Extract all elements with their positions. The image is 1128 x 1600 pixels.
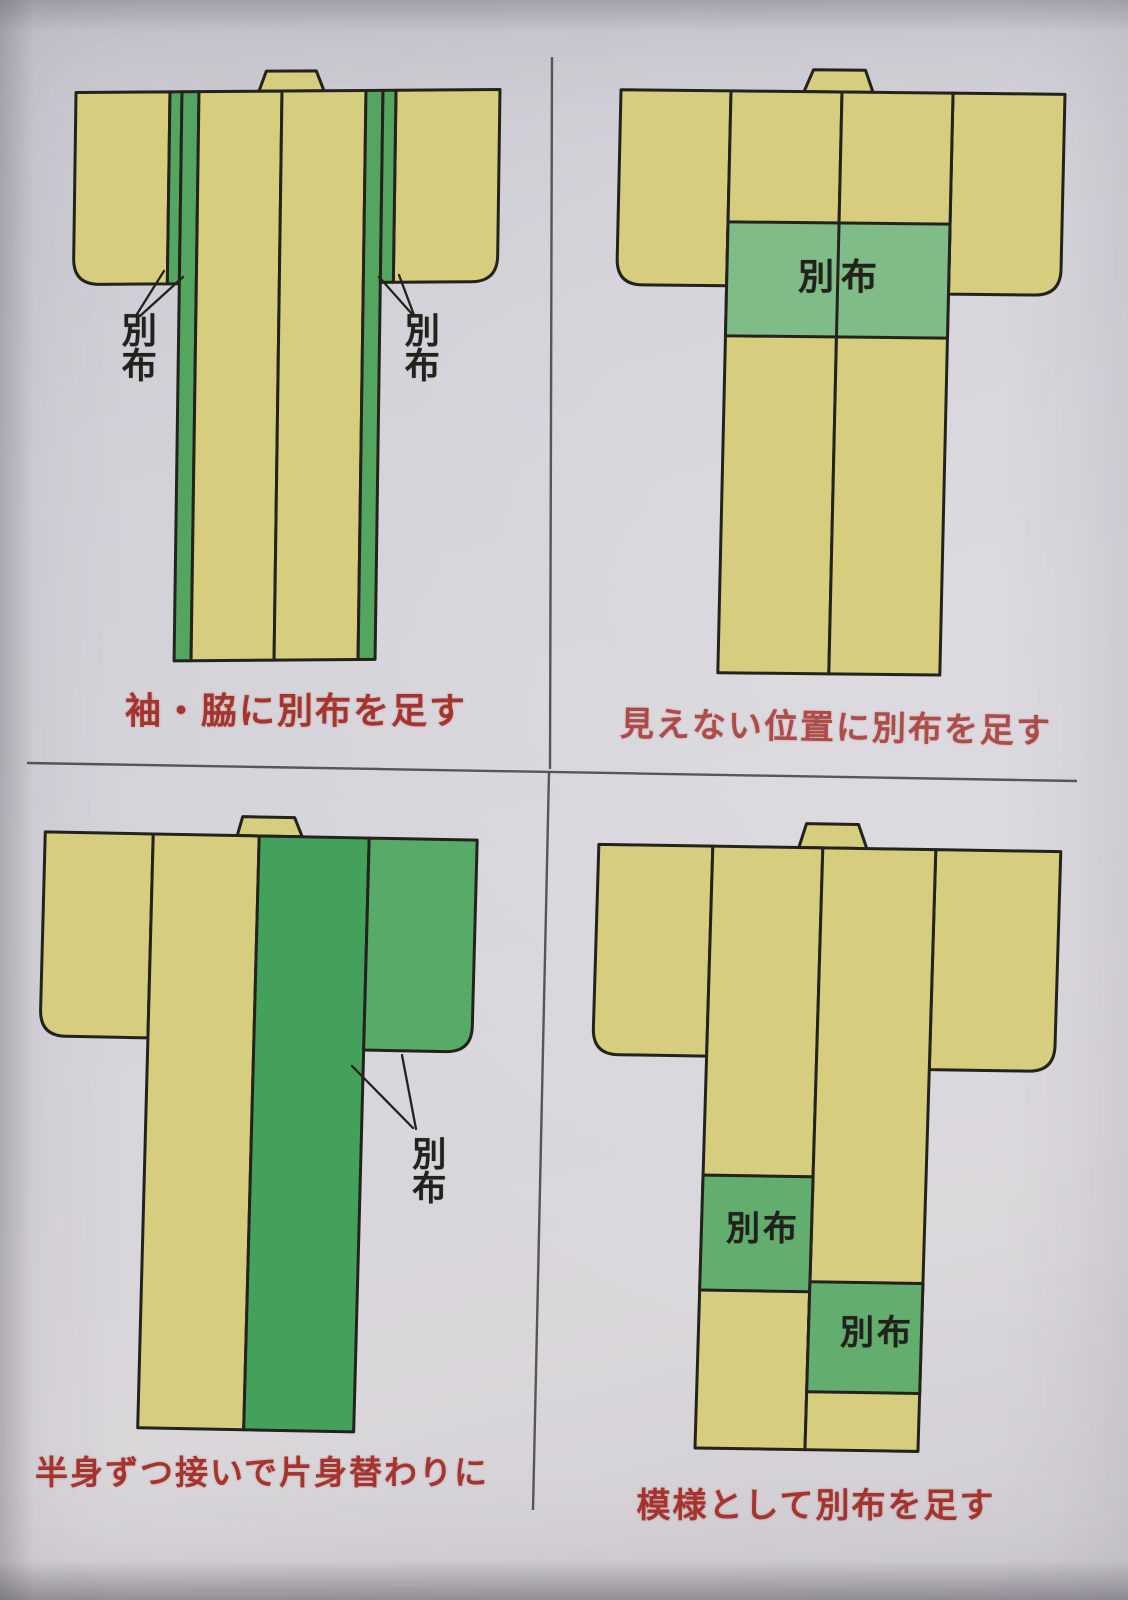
collar-tab bbox=[799, 824, 868, 849]
label-betsununo-top-left-right: 別布 bbox=[400, 312, 438, 382]
collar-tab bbox=[237, 817, 302, 837]
collar-tab bbox=[804, 70, 873, 93]
caption-top-left: 袖・脇に別布を足す bbox=[125, 682, 467, 734]
body-panel-right bbox=[274, 90, 366, 660]
body-panel-left bbox=[718, 91, 842, 674]
sleeve-right bbox=[929, 850, 1061, 1072]
divider-vertical-top bbox=[550, 57, 552, 769]
label-betsununo-bottom-left: 別布 bbox=[406, 1136, 443, 1204]
label-betsununo-bottom-right-upper: 別布 bbox=[726, 1212, 800, 1249]
divider-vertical-bottom bbox=[533, 772, 549, 1510]
body-panel-left bbox=[191, 91, 282, 661]
kimono-bottom-right bbox=[581, 820, 1062, 1453]
sleeve-left-yellow bbox=[40, 832, 153, 1038]
divider-horizontal bbox=[27, 763, 1077, 781]
body-panel-left bbox=[695, 846, 823, 1450]
sleeve-left bbox=[617, 90, 731, 286]
sleeve-left bbox=[73, 92, 170, 285]
sleeve-right bbox=[948, 93, 1065, 295]
book-page: 別布 別布 別布 別布 別布 別布 袖・脇に別布を足す 見えない位置に別布を足す… bbox=[0, 0, 1128, 1600]
body-panel-right bbox=[829, 92, 953, 675]
sleeve-left bbox=[593, 844, 713, 1056]
green-strip-sleeve-right bbox=[380, 90, 396, 282]
caption-top-right: 見えない位置に別布を足す bbox=[620, 696, 1053, 753]
body-panel-left-yellow bbox=[138, 834, 260, 1430]
label-betsununo-bottom-right-lower: 別布 bbox=[840, 1316, 914, 1353]
label-betsununo-top-left-left: 別布 bbox=[117, 312, 155, 382]
sleeve-right bbox=[393, 90, 500, 283]
caption-bottom-left: 半身ずつ接いで片身替わりに bbox=[35, 1446, 489, 1494]
kimono-diagrams bbox=[0, 0, 1128, 1600]
kimono-bottom-left bbox=[30, 813, 478, 1434]
body-panel-right-green bbox=[244, 836, 370, 1432]
collar-tab bbox=[259, 71, 324, 91]
kimono-top-right bbox=[608, 68, 1066, 677]
caption-bottom-right: 模様として別布を足す bbox=[637, 1478, 996, 1527]
label-betsununo-top-right-band: 別布 bbox=[798, 258, 884, 297]
sleeve-right-green bbox=[364, 838, 478, 1052]
